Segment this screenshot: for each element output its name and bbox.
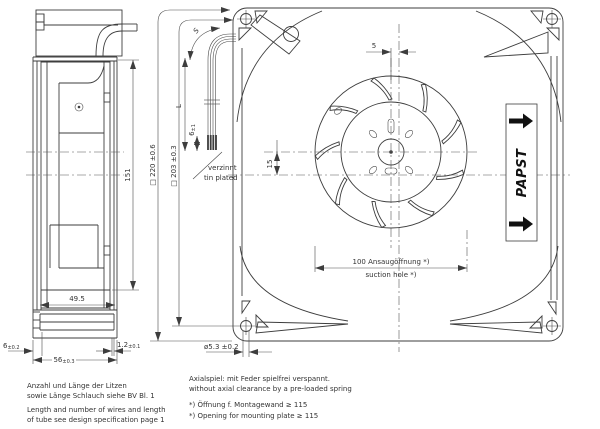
note-left-en-1: Length and number of wires and length [27, 406, 166, 414]
hub-holes [333, 106, 414, 175]
wire-assembly: verzinnt tin plated [193, 34, 238, 182]
drawing-canvas: 151 49.5 6±0.2 1.2±0.1 56±0.3 [0, 0, 600, 429]
mounting-hole-top-right [543, 10, 561, 28]
dim-tinned: 6±1 [188, 124, 197, 136]
front-dimensions: □ 220 ±0.6 □ 203 ±0.3 5 15 100 Ansaugöff… [149, 10, 467, 357]
note-axial-de: Axialspiel: mit Feder spielfrei verspann… [189, 375, 330, 383]
dim-suction-de: 100 Ansaugöffnung *) [353, 258, 430, 266]
papst-label: PAPST [506, 104, 537, 241]
note-left-en-2: of tube see design specification page 1 [27, 416, 165, 424]
disc-rivet-hole [333, 106, 343, 115]
dim-5: 5 [372, 42, 376, 50]
note-left-de-1: Anzahl und Länge der Litzen [27, 382, 127, 390]
mounting-hole-bottom-right [543, 317, 561, 335]
dim-square-203: □ 203 ±0.3 [170, 145, 178, 186]
wire-boss-circle [284, 27, 299, 42]
dim-15: 15 [266, 160, 274, 169]
side-view-dimensions: 151 49.5 6±0.2 1.2±0.1 56±0.3 [3, 60, 140, 365]
note-opening-de: *) Öffnung f. Montagewand ≥ 115 [189, 400, 307, 409]
side-view-outline [33, 10, 137, 338]
tinned-note-en: tin plated [204, 174, 238, 182]
dim-6: 6±0.2 [3, 342, 20, 351]
side-view: 151 49.5 6±0.2 1.2±0.1 56±0.3 [3, 10, 140, 365]
dim-square-220: □ 220 ±0.6 [149, 144, 157, 186]
dim-wire-length: L [175, 104, 183, 108]
mounting-hole-bottom-left [237, 317, 255, 335]
dim-49-5: 49.5 [69, 295, 85, 303]
wire-bundle [204, 34, 236, 150]
front-view: PAPST verzinnt tin plated [149, 8, 570, 357]
dim-1-2: 1.2±0.1 [117, 341, 140, 350]
mounting-hole-top-left [237, 10, 255, 28]
dim-suction-en: suction hole *) [366, 271, 417, 279]
technical-drawing: 151 49.5 6±0.2 1.2±0.1 56±0.3 [0, 0, 600, 429]
dim-151: 151 [124, 168, 132, 181]
note-left-de-2: sowie Länge Schlauch siehe BV Bl. 1 [27, 392, 155, 400]
notes-left: Anzahl und Länge der Litzen sowie Länge … [27, 382, 166, 424]
note-opening-en: *) Opening for mounting plate ≥ 115 [189, 412, 318, 420]
note-axial-en: without axial clearance by a pre-loaded … [189, 385, 352, 393]
dim-wire-bend: S [192, 26, 201, 35]
brand-text: PAPST [515, 148, 530, 197]
tinned-ends [208, 135, 216, 150]
notes-center: Axialspiel: mit Feder spielfrei verspann… [189, 375, 352, 420]
dim-56: 56±0.3 [53, 356, 74, 365]
rotation-mark-dot-icon [78, 106, 81, 109]
side-view-symbol [75, 103, 83, 111]
tinned-note-de: verzinnt [208, 164, 237, 172]
dim-mount-hole: ø5.3 ±0.2 [204, 343, 239, 351]
notes: Anzahl und Länge der Litzen sowie Länge … [27, 375, 352, 424]
